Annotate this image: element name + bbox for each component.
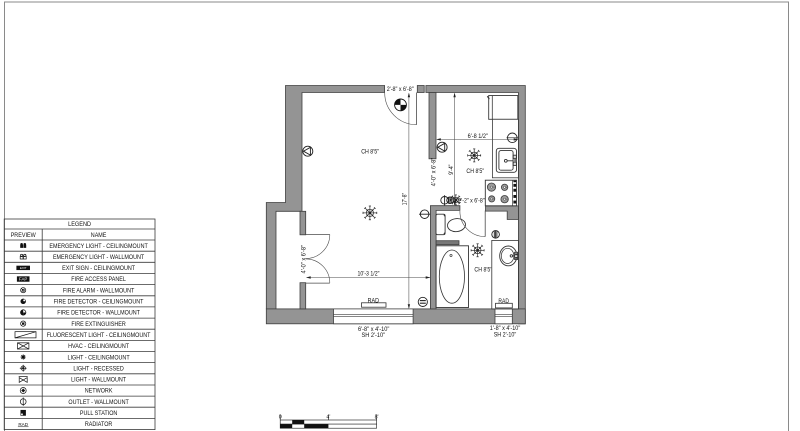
svg-text:4'-0" x 6'-8": 4'-0" x 6'-8"	[431, 158, 438, 187]
svg-text:RAD: RAD	[498, 299, 509, 305]
svg-text:FIRE ALARM - WALLMOUNT: FIRE ALARM - WALLMOUNT	[63, 287, 135, 294]
svg-text:FLUORESCENT LIGHT - CEILINGMOU: FLUORESCENT LIGHT - CEILINGMOUNT	[47, 332, 151, 339]
svg-text:LIGHT - WALLMOUNT: LIGHT - WALLMOUNT	[71, 377, 126, 384]
svg-text:PREVIEW: PREVIEW	[11, 232, 36, 239]
svg-text:LIGHT - RECESSED: LIGHT - RECESSED	[73, 365, 124, 372]
svg-text:8': 8'	[375, 415, 379, 421]
svg-text:CH 8'5": CH 8'5"	[474, 266, 492, 273]
svg-text:LIGHT - CEILINGMOUNT: LIGHT - CEILINGMOUNT	[68, 354, 130, 361]
svg-text:FIRE DETECTOR - CEILINGMOUNT: FIRE DETECTOR - CEILINGMOUNT	[54, 299, 144, 306]
svg-text:9'-4": 9'-4"	[448, 165, 455, 175]
svg-text:CH 8'5": CH 8'5"	[361, 149, 379, 156]
svg-text:RAD: RAD	[368, 298, 380, 304]
svg-text:HVAC - CEILINGMOUNT: HVAC - CEILINGMOUNT	[68, 343, 129, 350]
svg-text:FAP: FAP	[19, 277, 27, 282]
svg-text:NETWORK: NETWORK	[85, 388, 113, 395]
svg-text:NAME: NAME	[91, 232, 107, 239]
svg-text:17'-8": 17'-8"	[402, 193, 409, 206]
svg-text:SH 2'-10": SH 2'-10"	[494, 332, 517, 339]
svg-text:RADIATOR: RADIATOR	[85, 421, 113, 428]
svg-text:SH 2'-10": SH 2'-10"	[362, 332, 386, 339]
svg-text:FIRE DETECTOR - WALLMOUNT: FIRE DETECTOR - WALLMOUNT	[57, 310, 140, 317]
svg-text:4': 4'	[326, 415, 330, 421]
svg-text:PULL STATION: PULL STATION	[80, 410, 118, 417]
svg-text:6'-8 1/2": 6'-8 1/2"	[468, 133, 488, 140]
svg-text:4'-0" x 6'-8": 4'-0" x 6'-8"	[301, 245, 308, 274]
svg-text:OUTLET - WALLMOUNT: OUTLET - WALLMOUNT	[68, 399, 129, 406]
svg-text:CH 8'5": CH 8'5"	[466, 168, 484, 175]
svg-text:EXIT SIGN - CEILINGMOUNT: EXIT SIGN - CEILINGMOUNT	[62, 265, 135, 272]
svg-text:EMERGENCY LIGHT - WALLMOUNT: EMERGENCY LIGHT - WALLMOUNT	[53, 254, 145, 261]
svg-text:LEGEND: LEGEND	[68, 221, 92, 228]
svg-text:10'-3 1/2": 10'-3 1/2"	[358, 270, 380, 277]
svg-text:EXIT: EXIT	[20, 266, 27, 270]
svg-text:FIRE EXTINGUISHER: FIRE EXTINGUISHER	[71, 321, 126, 328]
svg-text:2'-8" x 6'-8": 2'-8" x 6'-8"	[387, 86, 414, 93]
svg-text:FIRE ACCESS PANEL: FIRE ACCESS PANEL	[71, 276, 126, 283]
svg-text:RAD: RAD	[18, 422, 28, 427]
svg-text:0: 0	[279, 415, 282, 421]
svg-text:2'-2" x 6'-8": 2'-2" x 6'-8"	[458, 197, 484, 204]
svg-text:EMERGENCY LIGHT - CEILINGMOUNT: EMERGENCY LIGHT - CEILINGMOUNT	[49, 243, 148, 250]
